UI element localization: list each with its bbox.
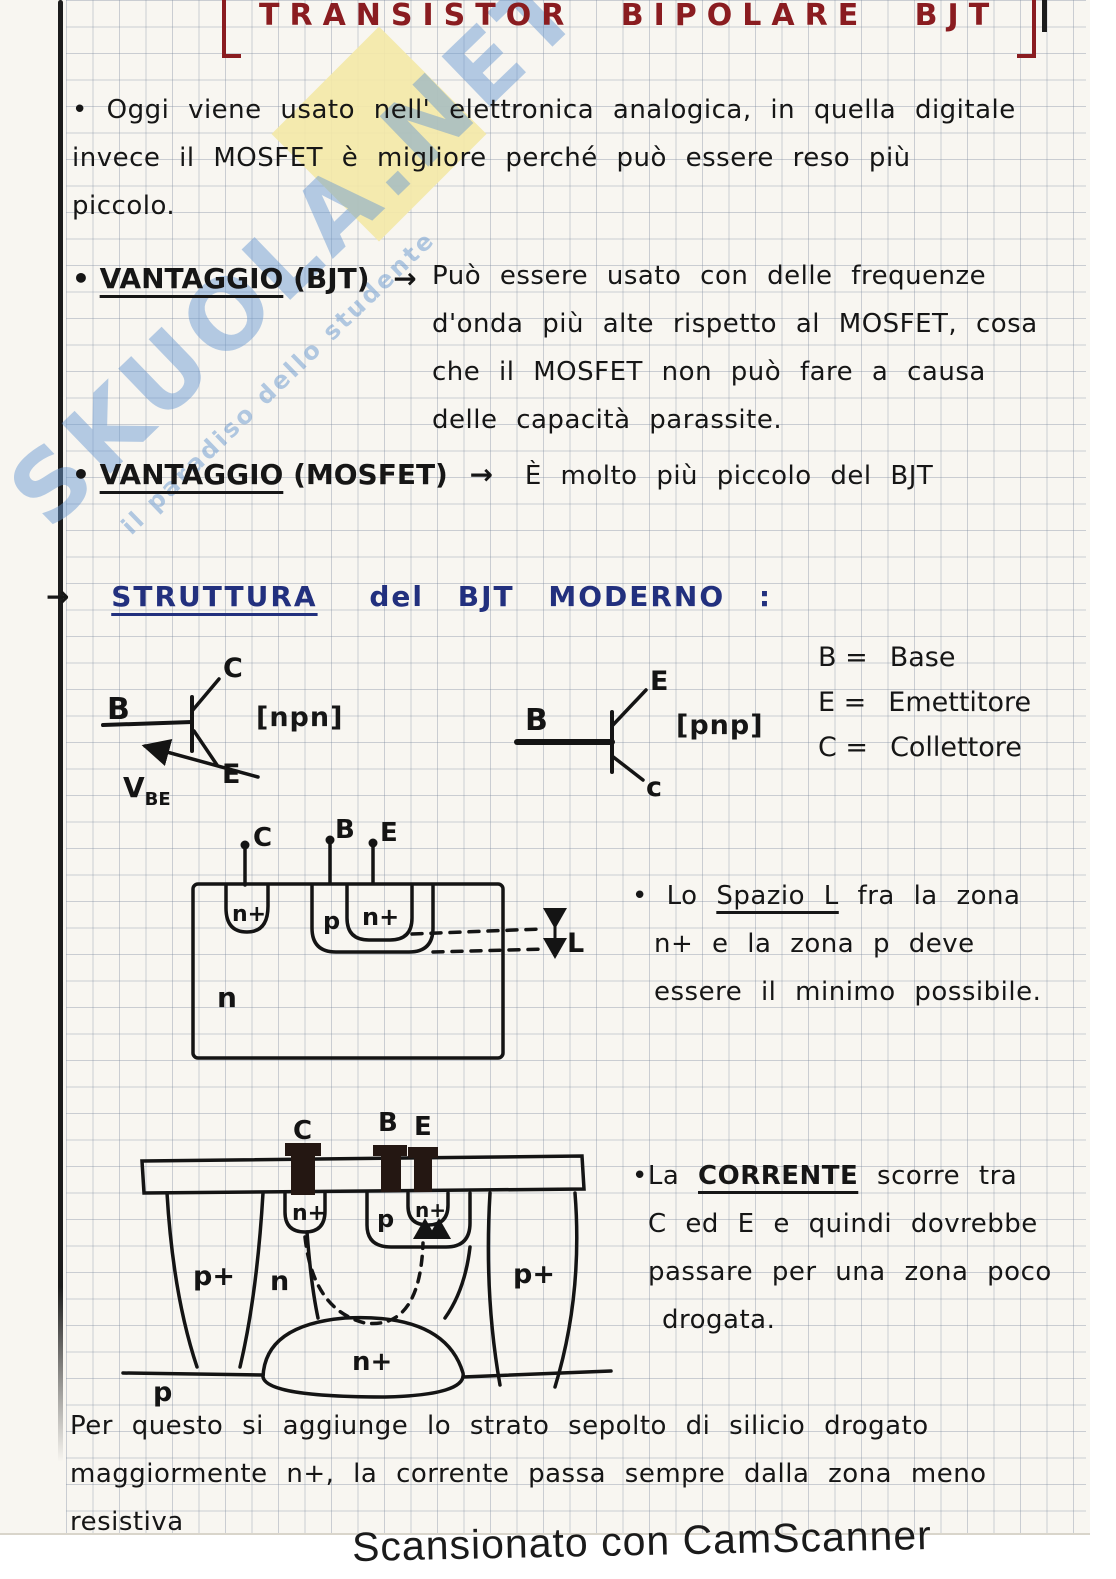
vbe-v: V: [123, 771, 145, 804]
vbe-sub: BE: [145, 789, 171, 810]
vantaggio-bjt-heading: • VANTAGGIO (BJT) →: [72, 262, 417, 295]
closing-line-2: maggiormente n+, la corrente passa sempr…: [70, 1450, 1030, 1498]
intro-line-2: invece il MOSFET è migliore perché può e…: [72, 134, 1032, 182]
page-content: TRANSISTOR BIPOLARE BJT • Oggi viene usa…: [0, 0, 1116, 1579]
note-corrente-pre: La: [648, 1161, 698, 1191]
cs2-pplus-left: p+: [193, 1261, 235, 1292]
page-title-row: TRANSISTOR BIPOLARE BJT: [222, 2, 1036, 58]
cs2-c-label: C: [293, 1116, 312, 1146]
note-spazio-pre: Lo: [667, 881, 717, 911]
vantaggio-mosfet-text: È molto più piccolo del BJT: [525, 461, 933, 491]
legend-val-emettitore: Emettitore: [888, 687, 1031, 718]
bullet: •: [72, 262, 90, 295]
vbe-arrow: [145, 746, 258, 777]
cs1-n-body: n: [217, 981, 237, 1014]
note-spazio-underlined: Spazio L: [716, 881, 838, 911]
cs2-e-label: E: [414, 1112, 432, 1142]
bullet: •: [72, 95, 88, 125]
cs2-b-label: B: [378, 1108, 398, 1138]
note-spazio: • Lo Spazio L fra la zona n+ e la zona p…: [632, 872, 1072, 1016]
note-corrente-line-4: drogata.: [662, 1296, 1072, 1344]
bjt-cross-section-buried-layer: C B E n+ p n+ p+ p+ n n+ p: [115, 1105, 620, 1405]
cs2-n-epi: n: [270, 1266, 289, 1297]
note-corrente-post: scorre tra: [858, 1161, 1017, 1191]
pnp-transistor-symbol: B E c: [505, 660, 670, 805]
cs1-c-label: C: [253, 823, 272, 853]
vantaggio-bjt-line-2: d'onda più alte rispetto al MOSFET, cosa: [432, 300, 1072, 348]
legend-row-base: B =Base: [818, 642, 1031, 673]
bullet: •: [72, 458, 90, 491]
closing-line-1: Per questo si aggiunge lo strato sepolto…: [70, 1402, 1030, 1450]
vantaggio-mosfet-label: VANTAGGIO: [100, 458, 284, 491]
vantaggio-bjt-line-1: Può essere usato con delle frequenze: [432, 252, 1072, 300]
cs1-e-label: E: [380, 818, 398, 848]
cs1-nplus-emitter: n+: [362, 903, 399, 931]
title-left-bracket: [222, 0, 241, 58]
note-corrente-line-3: passare per una zona poco: [648, 1248, 1072, 1296]
note-corrente-line-1: •La CORRENTE scorre tra: [632, 1152, 1072, 1200]
arrow-right: →: [393, 262, 416, 295]
struttura-title: STRUTTURA: [111, 580, 317, 613]
legend-val-collettore: Collettore: [890, 732, 1022, 763]
bullet: •: [632, 1161, 648, 1191]
npn-collector-label: C: [223, 653, 243, 684]
legend-val-base: Base: [890, 642, 956, 673]
legend-row-collettore: C =Collettore: [818, 732, 1031, 763]
bjt-cross-section-simple: L C B E n+ p n+ n: [185, 822, 630, 1067]
struttura-heading: → STRUTTURA del BJT MODERNO :: [46, 580, 772, 613]
legend-key-e: E =: [818, 687, 866, 718]
intro-paragraph: • Oggi viene usato nell' elettronica ana…: [72, 86, 1032, 230]
cs2-nplus-emitter: n+: [415, 1198, 446, 1222]
vantaggio-bjt-line-3: che il MOSFET non può fare a causa: [432, 348, 1072, 396]
note-spazio-line-2: n+ e la zona p deve: [654, 920, 1072, 968]
pnp-tag: [pnp]: [676, 710, 764, 741]
cs2-pplus-right: p+: [513, 1259, 555, 1290]
npn-base-label: B: [107, 692, 130, 727]
arrow-right: →: [470, 458, 493, 491]
struttura-rest: del BJT MODERNO :: [369, 580, 772, 613]
vantaggio-bjt-device: (BJT): [293, 262, 369, 295]
terminal-legend: B =Base E =Emettitore C =Collettore: [818, 642, 1031, 777]
pnp-base-label: B: [525, 703, 548, 738]
cs2-nplus-buried: n+: [352, 1347, 392, 1377]
intro-line-3: piccolo.: [72, 182, 1032, 230]
scanned-notebook-page: SKUOLA.NET il paradiso dello studente TR…: [0, 0, 1116, 1579]
title-right-bracket: [1017, 0, 1036, 58]
npn-tag: [npn]: [256, 702, 343, 733]
legend-key-b: B =: [818, 642, 868, 673]
npn-emitter-label: E: [222, 759, 240, 790]
legend-key-c: C =: [818, 732, 868, 763]
cs1-p-base: p: [323, 907, 340, 935]
bullet: •: [632, 881, 648, 911]
note-corrente-underlined: CORRENTE: [698, 1161, 858, 1191]
vantaggio-mosfet-row: • VANTAGGIO (MOSFET) → È molto più picco…: [72, 452, 933, 500]
vantaggio-mosfet-device: (MOSFET): [293, 458, 448, 491]
note-spazio-post: fra la zona: [839, 881, 1021, 911]
l-dimension-label: L: [567, 928, 584, 959]
note-spazio-line-3: essere il minimo possibile.: [654, 968, 1072, 1016]
page-title: TRANSISTOR BIPOLARE BJT: [259, 0, 999, 33]
vantaggio-bjt-text: Può essere usato con delle frequenze d'o…: [432, 252, 1072, 444]
cs1-nplus-collector: n+: [232, 902, 266, 927]
cs2-p-base: p: [377, 1205, 394, 1233]
pnp-collector-label: c: [646, 772, 662, 803]
npn-vbe-label: VBE: [123, 771, 171, 810]
intro-line-1: • Oggi viene usato nell' elettronica ana…: [72, 86, 1032, 134]
note-corrente-line-2: C ed E e quindi dovrebbe: [648, 1200, 1072, 1248]
vantaggio-bjt-label: VANTAGGIO: [100, 262, 284, 295]
legend-row-emettitore: E =Emettitore: [818, 687, 1031, 718]
cs1-b-label: B: [335, 815, 355, 845]
intro-line-1-text: Oggi viene usato nell' elettronica analo…: [107, 95, 1016, 125]
cs2-nplus-collector: n+: [292, 1201, 326, 1226]
pnp-emitter-label: E: [650, 666, 668, 697]
vantaggio-bjt-line-4: delle capacità parassite.: [432, 396, 1072, 444]
note-spazio-line-1: • Lo Spazio L fra la zona: [632, 872, 1072, 920]
note-corrente: •La CORRENTE scorre tra C ed E e quindi …: [632, 1152, 1072, 1344]
arrow-right: →: [46, 580, 71, 613]
